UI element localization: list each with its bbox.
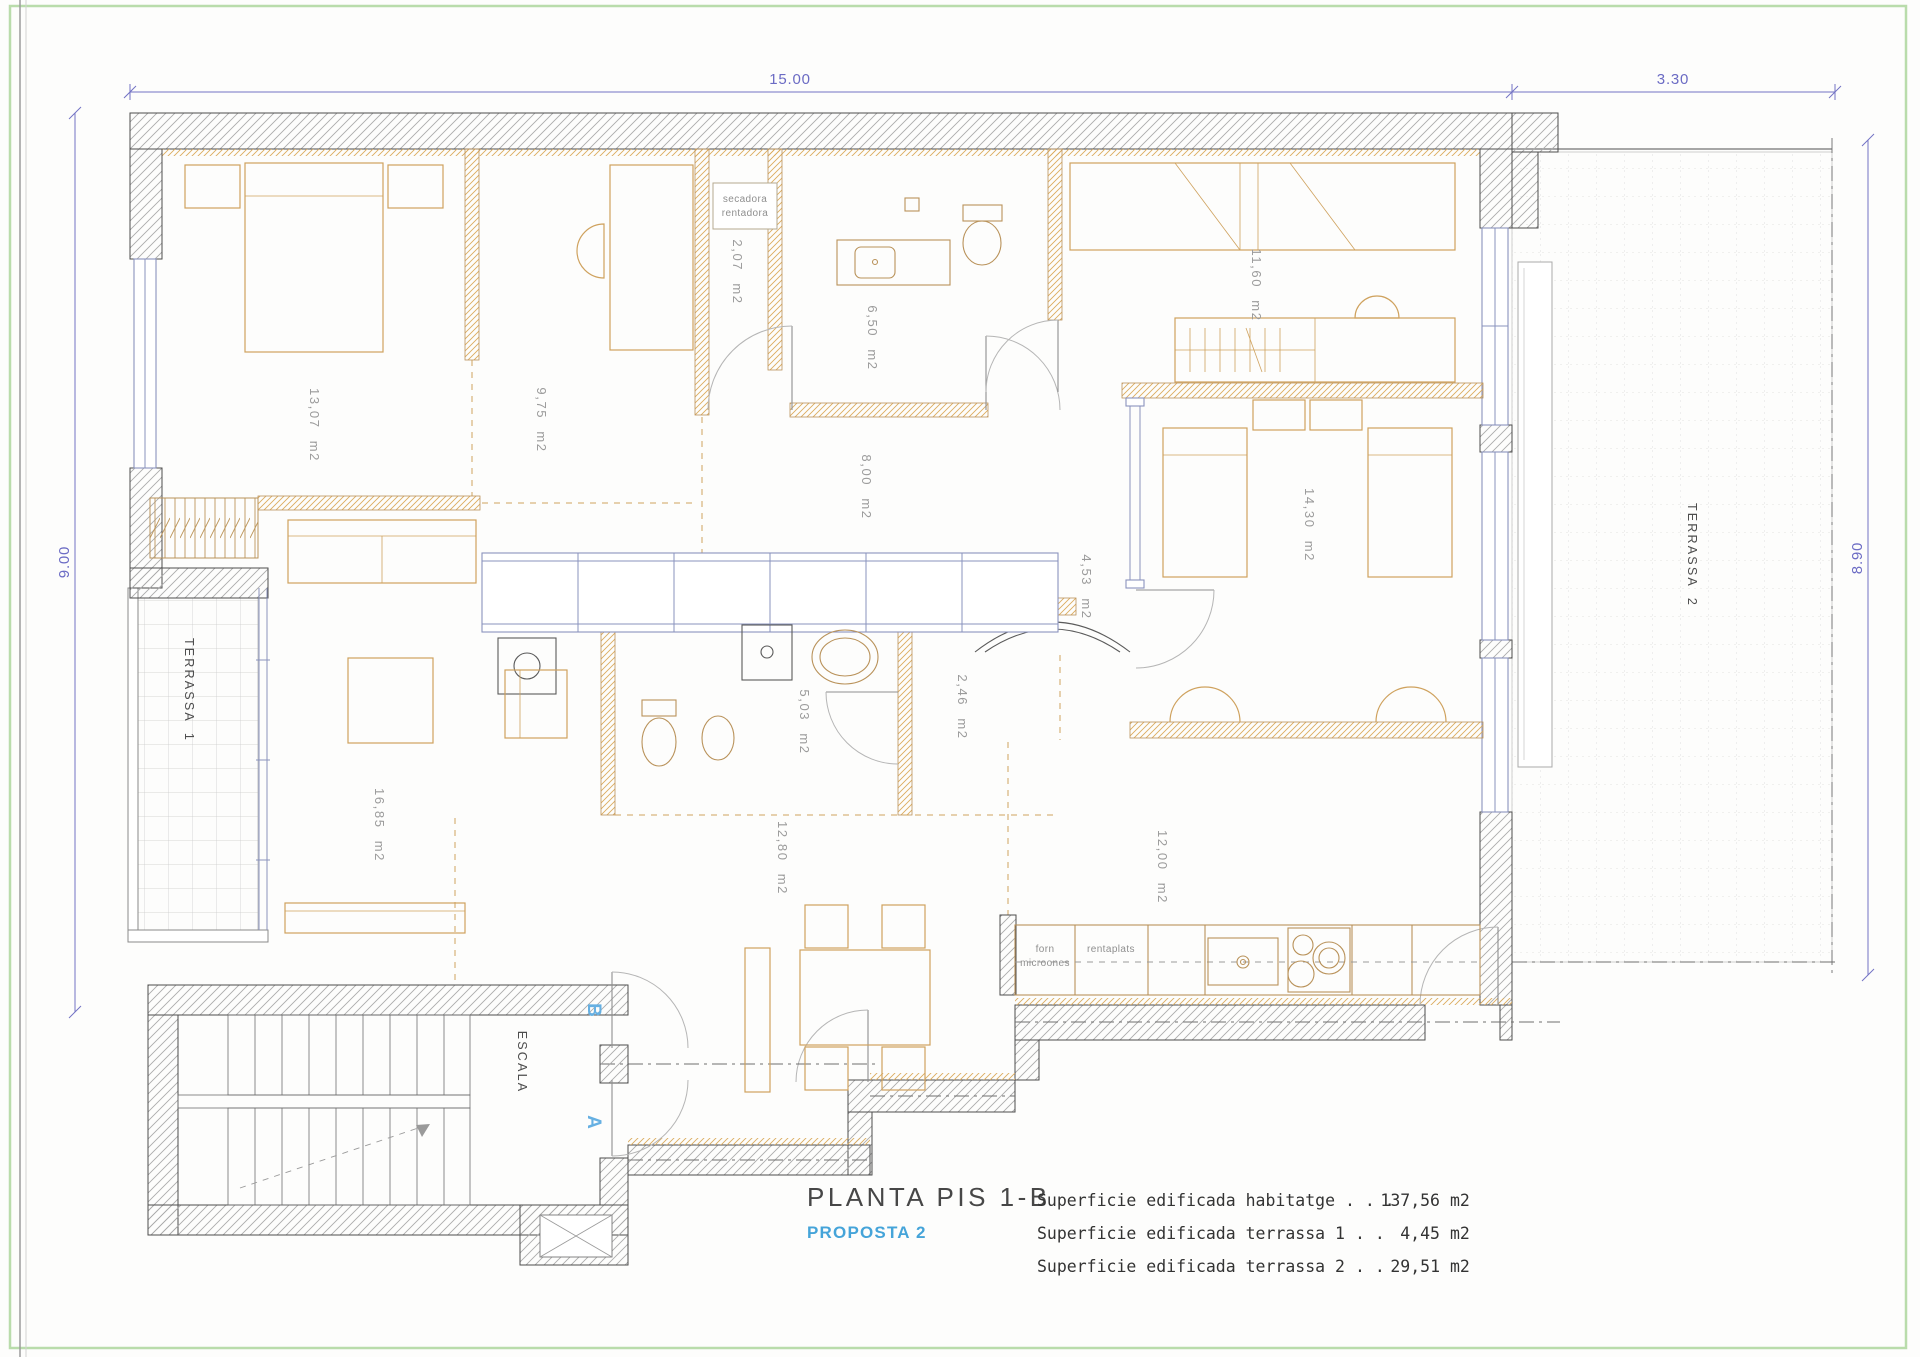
dimension-left: 9.00 (56, 107, 81, 1018)
surface-row-3: Superficie edificada terrassa 2. .29,51m… (1037, 1257, 1470, 1276)
terrace-1: TERRASSA 1 (128, 588, 268, 942)
dim-top-right: 3.30 (1657, 71, 1689, 88)
doors (708, 320, 1498, 1082)
dim-top-main: 15.00 (769, 71, 811, 88)
exterior-walls (130, 113, 1558, 1175)
terrace-1-label: TERRASSA 1 (182, 638, 196, 742)
area-kitchen: 12,00 m2 (1155, 830, 1170, 904)
stairwell: ESCALA B A (148, 972, 688, 1265)
laundry-room: secadora rentadora (713, 183, 777, 229)
area-bathroom2: 5,03 m2 (797, 689, 812, 754)
area-corridor: 4,53 m2 (1079, 554, 1094, 619)
floor-plan-drawing: 15.00 3.30 9.00 8.90 TERRASSA 2 TERRASSA… (0, 0, 1920, 1357)
bedroom2-furniture (577, 165, 693, 350)
door-letter-a: A (583, 1115, 604, 1129)
floor-plan-page: 15.00 3.30 9.00 8.90 TERRASSA 2 TERRASSA… (0, 0, 1920, 1357)
dimension-right: 8.90 (1849, 134, 1874, 981)
area-pantry: 2,46 m2 (955, 674, 970, 739)
area-hall: 8,00 m2 (859, 454, 874, 519)
kitchen-counter: forn microones rentaplats (1015, 925, 1480, 995)
area-bedroom2: 9,75 m2 (534, 387, 549, 452)
area-bedroom3: 11,60 m2 (1249, 248, 1264, 321)
stair-direction-arrow (416, 1124, 430, 1137)
bathroom2-fixtures (642, 625, 878, 766)
area-bedroom1: 13,07 m2 (307, 388, 322, 462)
area-dining: 12,80 m2 (775, 821, 790, 895)
area-bedroom4: 14,30 m2 (1302, 488, 1317, 562)
laundry-label-2: rentadora (722, 208, 768, 219)
bathroom1-fixtures (837, 198, 1002, 285)
proposal-label: PROPOSTA 2 (807, 1223, 927, 1242)
gallery-window-band (482, 553, 1058, 694)
dim-right: 8.90 (1849, 542, 1866, 574)
stair-label: ESCALA (515, 1031, 529, 1094)
terrace-2: TERRASSA 2 (1512, 138, 1840, 976)
plan-title: PLANTA PIS 1-B (807, 1182, 1051, 1212)
kitchen-oven-label-1: forn (1036, 944, 1055, 955)
door-letter-b: B (583, 1003, 604, 1017)
area-living: 16,85 m2 (372, 788, 387, 862)
laundry-label-1: secadora (723, 194, 767, 205)
dim-left: 9.00 (56, 546, 73, 578)
surface-row-2: Superficie edificada terrassa 1. .4,45m2 (1037, 1224, 1470, 1243)
terrace-2-label: TERRASSA 2 (1685, 503, 1699, 607)
area-laundry: 2,07 m2 (730, 239, 745, 304)
kitchen-oven-label-2: microones (1020, 958, 1070, 969)
bedroom1-wardrobe (150, 498, 258, 558)
surface-row-1: Superficie edificada habitatge. . .137,5… (1037, 1191, 1470, 1210)
kitchen-dishwasher-label: rentaplats (1087, 944, 1135, 955)
laundry-sink (498, 638, 556, 694)
area-bathroom1: 6,50 m2 (865, 305, 880, 370)
title-block: PLANTA PIS 1-B PROPOSTA 2 Superficie edi… (807, 1182, 1470, 1276)
dimension-top: 15.00 3.30 (124, 71, 1841, 100)
